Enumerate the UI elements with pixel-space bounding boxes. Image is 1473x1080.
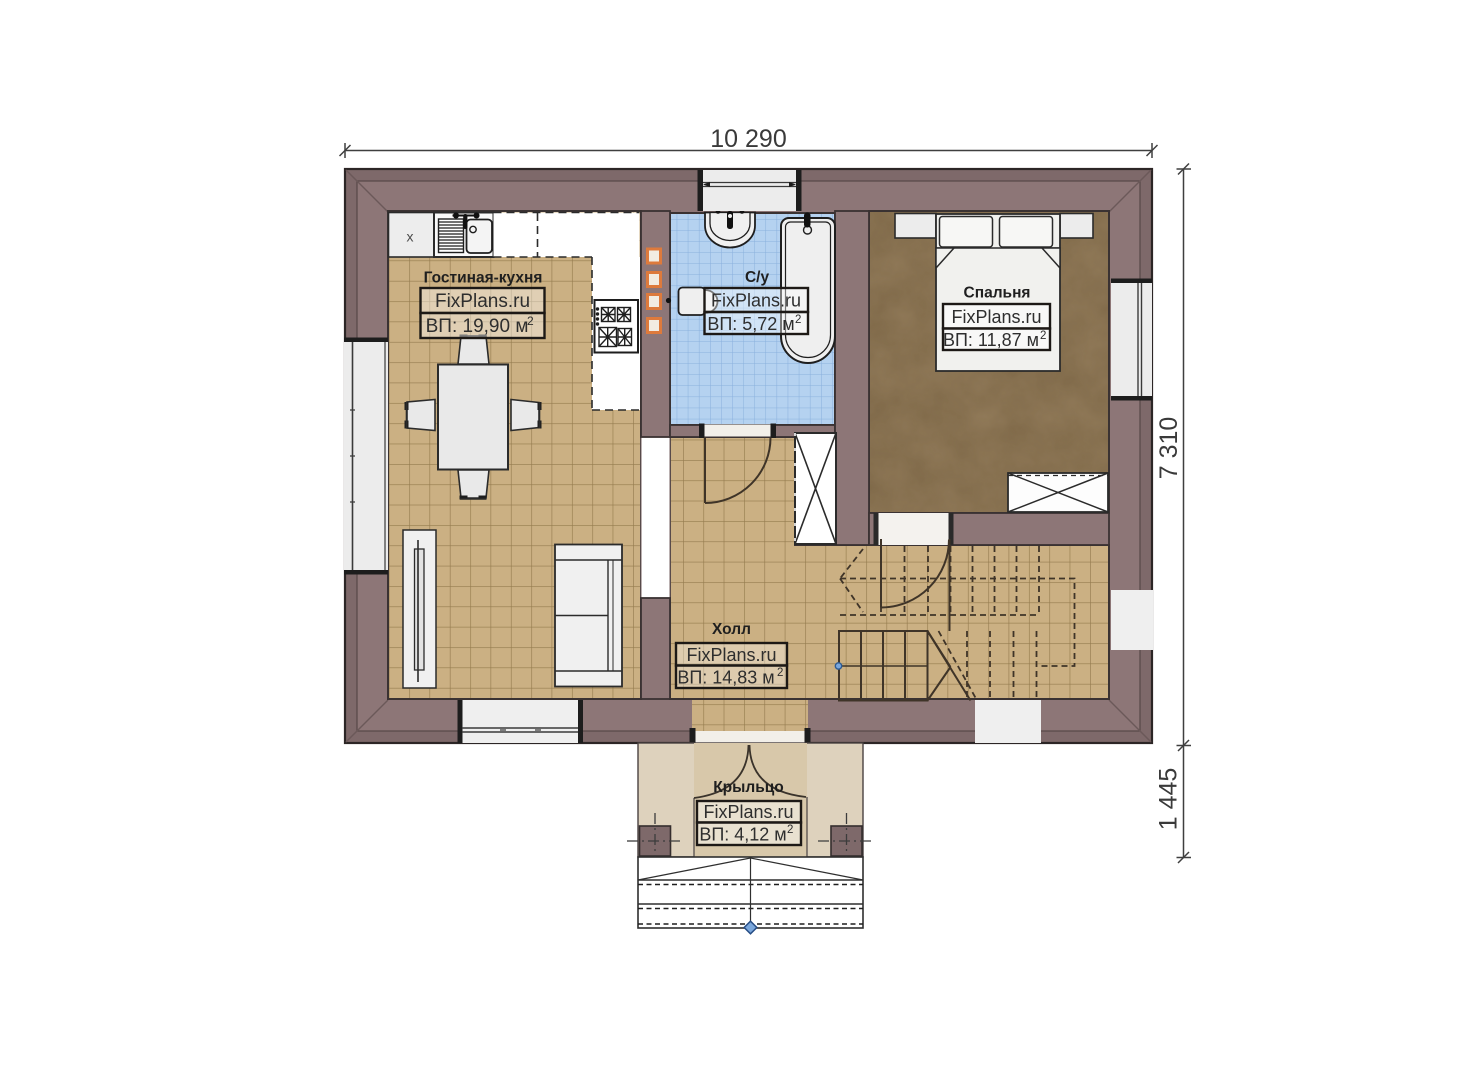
svg-text:Гостиная-кухня: Гостиная-кухня xyxy=(424,270,543,287)
svg-text:FixPlans.ru: FixPlans.ru xyxy=(703,802,793,822)
svg-text:Крыльцо: Крыльцо xyxy=(713,779,784,796)
svg-text:ВП: 14,83 м: ВП: 14,83 м xyxy=(677,668,774,688)
svg-text:2: 2 xyxy=(527,314,534,328)
svg-text:7 310: 7 310 xyxy=(1155,417,1183,480)
svg-text:ВП: 11,87 м: ВП: 11,87 м xyxy=(943,330,1039,350)
svg-text:1 445: 1 445 xyxy=(1155,768,1183,831)
svg-text:ВП: 5,72 м: ВП: 5,72 м xyxy=(707,314,794,334)
svg-text:FixPlans.ru: FixPlans.ru xyxy=(686,645,776,665)
svg-text:ВП: 19,90 м: ВП: 19,90 м xyxy=(426,316,529,337)
svg-text:2: 2 xyxy=(787,824,793,836)
svg-text:2: 2 xyxy=(1040,330,1046,342)
svg-text:10 290: 10 290 xyxy=(710,125,786,153)
svg-text:Холл: Холл xyxy=(712,621,751,638)
svg-text:FixPlans.ru: FixPlans.ru xyxy=(951,307,1041,327)
svg-text:Спальня: Спальня xyxy=(964,285,1031,302)
svg-text:x: x xyxy=(407,229,414,245)
svg-text:2: 2 xyxy=(795,314,801,326)
svg-text:FixPlans.ru: FixPlans.ru xyxy=(711,291,801,311)
svg-text:FixPlans.ru: FixPlans.ru xyxy=(435,291,530,312)
svg-text:ВП: 4,12 м: ВП: 4,12 м xyxy=(699,825,786,845)
svg-text:С/у: С/у xyxy=(745,269,770,286)
svg-text:2: 2 xyxy=(777,667,783,679)
